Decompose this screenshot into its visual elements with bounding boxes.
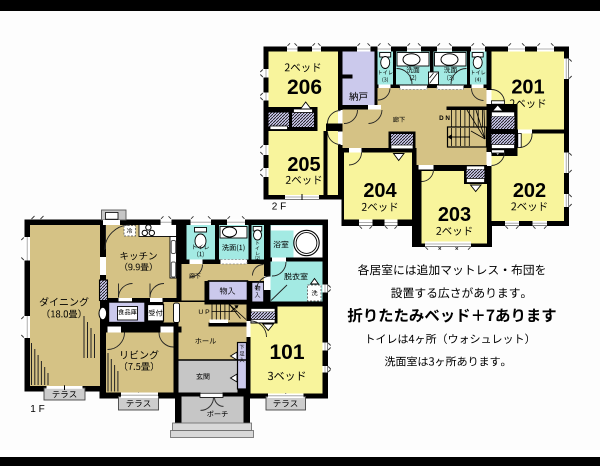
svg-text:U P: U P <box>198 309 210 316</box>
svg-text:206: 206 <box>287 76 322 99</box>
svg-text:D N: D N <box>439 115 450 122</box>
svg-text:2 F: 2 F <box>272 202 286 213</box>
svg-text:201: 201 <box>511 77 544 99</box>
svg-text:202: 202 <box>513 180 546 202</box>
svg-text:203: 203 <box>438 204 471 226</box>
svg-text:205: 205 <box>287 154 320 176</box>
svg-text:101: 101 <box>269 341 304 364</box>
svg-text:204: 204 <box>363 180 397 202</box>
svg-text:1 F: 1 F <box>30 404 44 415</box>
